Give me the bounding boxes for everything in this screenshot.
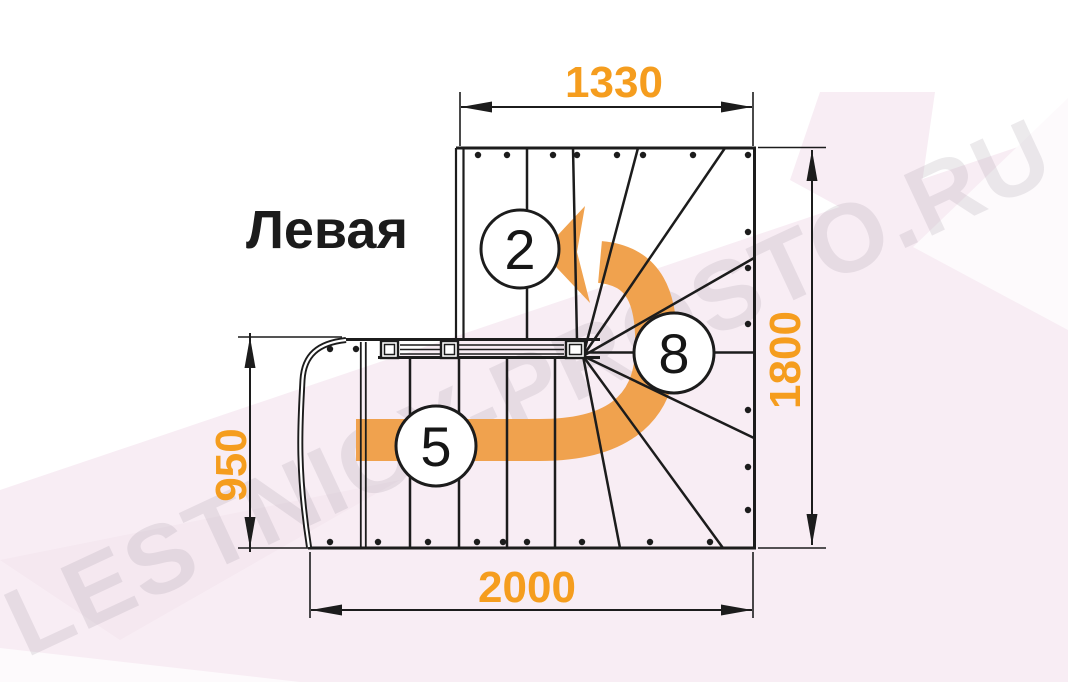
step-label-lower: 5 [396,406,476,486]
dimension-top: 1330 [460,58,753,146]
dimension-left-label: 950 [207,428,256,501]
dimension-bottom-label: 2000 [478,563,576,612]
stair-plan-page: LESTNICY-PROSTO.RU [0,0,1068,682]
step-number-2: 2 [504,218,535,281]
step-label-winder: 8 [634,313,714,393]
step-number-5: 5 [420,415,451,478]
stair-plan-drawing: LESTNICY-PROSTO.RU [0,0,1068,682]
step-label-upper: 2 [481,210,559,288]
dimension-top-label: 1330 [565,58,663,107]
step-number-8: 8 [658,322,689,385]
dimension-right-label: 1800 [761,311,810,409]
page-title: Левая [246,200,408,260]
